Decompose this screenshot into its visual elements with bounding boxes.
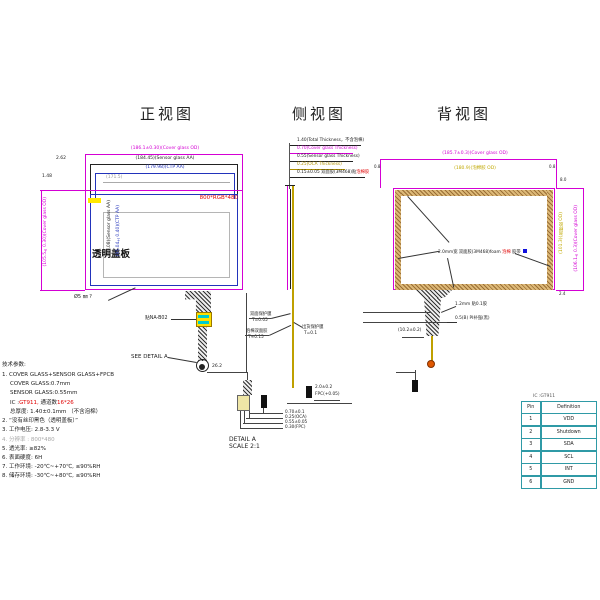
dim-line [103, 182, 230, 183]
tech-line-3: SENSOR GLASS:0.55mm [10, 390, 77, 396]
front-view-title: 正视图 [140, 103, 194, 124]
fpc-tail-line [431, 336, 433, 362]
detail-leg [240, 411, 241, 428]
pin-number: 5 [521, 463, 542, 476]
detail-line [247, 372, 248, 380]
fpc-edge [292, 186, 294, 388]
back-tail-dim: (10.2±0.2) [398, 329, 421, 334]
tech-line-12: 8. 储存环境: -30℃~+80℃, ≤90%RH [2, 473, 100, 479]
tape-foam-red: 泡棉胶 [356, 170, 369, 175]
pin-table-caption: IC :GT911 [533, 394, 555, 399]
ic-channels: 16*26 [57, 400, 74, 406]
dim-ext-line [380, 159, 381, 188]
pin-number: 6 [521, 476, 542, 489]
dim-line [583, 188, 584, 290]
tech-line-6: 2. “没有丝印黑色（透明盖板）” [2, 418, 78, 424]
side-stack-oca: 0.25(OCA Thickness) [297, 163, 342, 168]
pin-definition: Shutdown [541, 426, 598, 439]
tech-line-10: 6. 表面硬度: 6H [2, 455, 42, 461]
blue-color-swatch [523, 249, 527, 253]
detail-a-scale: SCALE 2:1 [229, 444, 260, 451]
engineering-drawing: 正视图 (186.1±0.30)(Cover glass OD) (184.45… [0, 0, 600, 600]
underline [249, 318, 271, 319]
detail-fpc [261, 395, 267, 408]
pin-number: 2 [521, 426, 542, 439]
leader-gather-line [289, 143, 290, 189]
dim-line [95, 173, 235, 174]
mark-line [396, 372, 415, 373]
front-dim-cover-height: (105.5±0.30)(Cover glass OD) [44, 197, 49, 267]
back-edge-dim-left: 0.8 [374, 165, 380, 170]
leader-line [249, 413, 283, 414]
foam-note-red: 泡棉 [502, 250, 511, 255]
side-film-thick1: T=0.05 [252, 319, 268, 324]
side-bottom-note: FPC(+0.05) [315, 393, 340, 398]
tech-line-1: 1. COVER GLASS+SENSOR GLASS+FPCB [2, 372, 114, 378]
detail-a-circle-dot [199, 364, 205, 370]
dim-ext-line [40, 290, 85, 291]
leader-line [240, 428, 283, 429]
dim-line [85, 154, 243, 155]
fpc-tail-strip [198, 327, 207, 361]
foam-tape-left [395, 190, 401, 290]
ic-name: GT911, [19, 400, 39, 406]
side-stack-cover: 0.70(Cover glass Thickness) [297, 147, 358, 152]
fpc-shoulder [185, 291, 211, 312]
back-dim-cover-width: (185.7±0.3)(Cover glass OD) [410, 151, 540, 156]
back-right-dim-top: 8.0 [560, 178, 566, 183]
foam-tape-bottom [395, 284, 553, 290]
connector-note: 贴NA-B02 [145, 316, 168, 322]
front-dim-aa-height: (95.04±0.40)(CTP AA) [117, 205, 122, 256]
side-stack-total: 1.40(Total Thickness，不含泡棉) [297, 139, 364, 144]
corner-annotation: Ø5 ㎜ ? [74, 295, 92, 301]
pin-definition: VDD [541, 413, 598, 426]
back-cover-outline [393, 188, 555, 290]
leader-line [271, 313, 291, 319]
detail-hatch [243, 380, 252, 395]
side-stack-tape: 0.15±0.05 双面胶(3M468)贴泡棉胶 [297, 171, 369, 176]
dim-ext-line [40, 190, 85, 191]
front-dim-sensor-width: (184.45)(Sensor glass AA) [95, 156, 235, 161]
leader-line [246, 418, 283, 419]
leader-line [363, 322, 447, 323]
side-view-title: 侧视图 [292, 103, 346, 124]
dim-line [402, 337, 424, 338]
pin-table-header-pin: Pin [521, 401, 542, 414]
side-film-thick2: T≈0.15 [248, 336, 264, 341]
tech-line-2: COVER GLASS:0.7mm [10, 381, 70, 387]
ic-mid: 通道数 [39, 400, 57, 406]
side-connector-block [306, 386, 312, 398]
back-tail-note1: 1.2mm 贴0.1胶 [455, 303, 487, 308]
back-tail-note2: 0.5(B) PI补强(黑) [455, 317, 490, 322]
front-dim-cover-width: (186.1±0.30)(Cover glass OD) [95, 146, 235, 151]
detail-layer4: 0.30(FPC) [285, 425, 305, 430]
foam-tape-right [547, 190, 553, 290]
tech-params-heading: 技术参数: [2, 362, 26, 368]
dim-ext-line [556, 159, 557, 188]
pin-definition: SDA [541, 438, 598, 451]
dim-line [207, 372, 247, 373]
tail-length-dim: 26.2 [212, 364, 222, 369]
back-dim-foam-height: (101.3)(泡棉胶 OD) [560, 212, 565, 254]
tape-dim: 0.15±0.05 双面胶(3M468)贴 [297, 170, 356, 175]
leader-line [363, 312, 431, 313]
ground-line [287, 403, 352, 404]
active-area-outline [103, 212, 230, 278]
tech-line-4: IC :GT911, 通道数16*26 [10, 400, 74, 406]
dim-line [380, 159, 557, 160]
tech-line-9: 5. 透光率: ≥82% [2, 446, 46, 452]
back-fpc-shoulder [416, 290, 452, 298]
tail-end-connector [427, 360, 435, 368]
resolution-label: 800*RGB*480 [158, 195, 238, 201]
front-gap-dim-left: 1.48 [42, 174, 52, 179]
front-dim-aa-width: (179.98)(CTP AA) [95, 165, 235, 170]
front-dim-va-width: (171.5) [106, 175, 122, 180]
logo-mark [88, 198, 101, 203]
pin-number: 3 [521, 438, 542, 451]
front-dim-sensor-height: (99.08)(Sensor glass AA) [108, 200, 113, 256]
side-film-thick3: T=0.1 [304, 332, 317, 337]
back-dim-foam-width: (180.9)(泡棉胶 OD) [410, 166, 540, 171]
leader-line [243, 423, 283, 424]
back-dim-cover-height: (106.1±0.3)(Cover glass OD) [575, 205, 580, 272]
pin-number: 1 [521, 413, 542, 426]
leader-line [441, 306, 456, 313]
leader-line [171, 319, 196, 320]
side-stack-sensor: 0.55(Sensor glass Thickness) [297, 155, 360, 160]
underline [289, 177, 365, 178]
front-gap-dim-top: 2.62 [56, 156, 66, 161]
foam-tape-note: 2.0mm宽 双面胶(3M468)foam 泡棉 胶带 [438, 249, 527, 256]
back-fpc-tail [424, 298, 441, 336]
leader-line [447, 322, 457, 323]
underline [314, 400, 340, 401]
tech-line-5: 总厚度: 1.40±0.1mm （不含泡棉） [10, 409, 101, 415]
pin-definition: INT [541, 463, 598, 476]
pin-definition: GND [541, 476, 598, 489]
connector-pad [198, 315, 209, 318]
side-bottom-dim: 2.0±0.2 [315, 386, 332, 391]
detail-cover-glass [237, 395, 250, 411]
tech-line-11: 7. 工作环境: -20℃~+70℃, ≤90%RH [2, 464, 100, 470]
dim-ext-line [85, 154, 86, 190]
ic-pre: IC : [10, 400, 19, 406]
sensor-glass-edge [290, 189, 291, 289]
detail-leg [244, 411, 245, 423]
leader-line [168, 357, 197, 363]
dim-ext-line [242, 154, 243, 190]
pin-table: Pin Definition 1 VDD 2 Shutdown 3 SDA 4 … [521, 401, 597, 489]
dim-ext-line [556, 188, 584, 189]
connector-pad [198, 321, 209, 324]
underline [245, 335, 269, 336]
back-edge-dim-right: 0.8 [549, 165, 555, 170]
see-detail-label: SEE DETAIL A [131, 354, 168, 360]
leader-line [269, 325, 291, 336]
tail-mark-block [412, 380, 418, 392]
pin-definition: SCL [541, 451, 598, 464]
foam-note-pre: 2.0mm宽 双面胶(3M468)foam [438, 250, 502, 255]
pin-number: 4 [521, 451, 542, 464]
cover-glass-edge [287, 186, 288, 290]
pin-table-header-def: Definition [541, 401, 598, 414]
back-view-title: 背视图 [437, 103, 491, 124]
tech-line-7: 3. 工作电压: 2.8-3.3 V [2, 427, 60, 433]
tech-line-8: 4. 分辨率 : 800*480 [2, 437, 55, 443]
foam-tape-top [395, 190, 553, 196]
back-right-dim-bottom: 2.4 [559, 292, 565, 297]
